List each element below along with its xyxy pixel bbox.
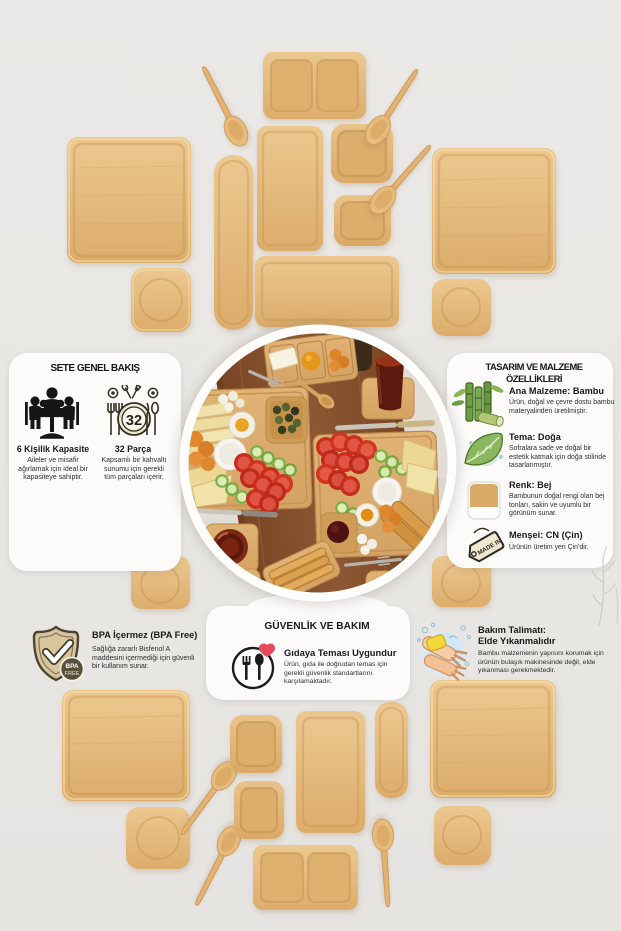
svg-text:BPA: BPA xyxy=(65,663,78,670)
svg-text:FREE: FREE xyxy=(65,671,80,677)
svg-text:32: 32 xyxy=(126,413,142,429)
